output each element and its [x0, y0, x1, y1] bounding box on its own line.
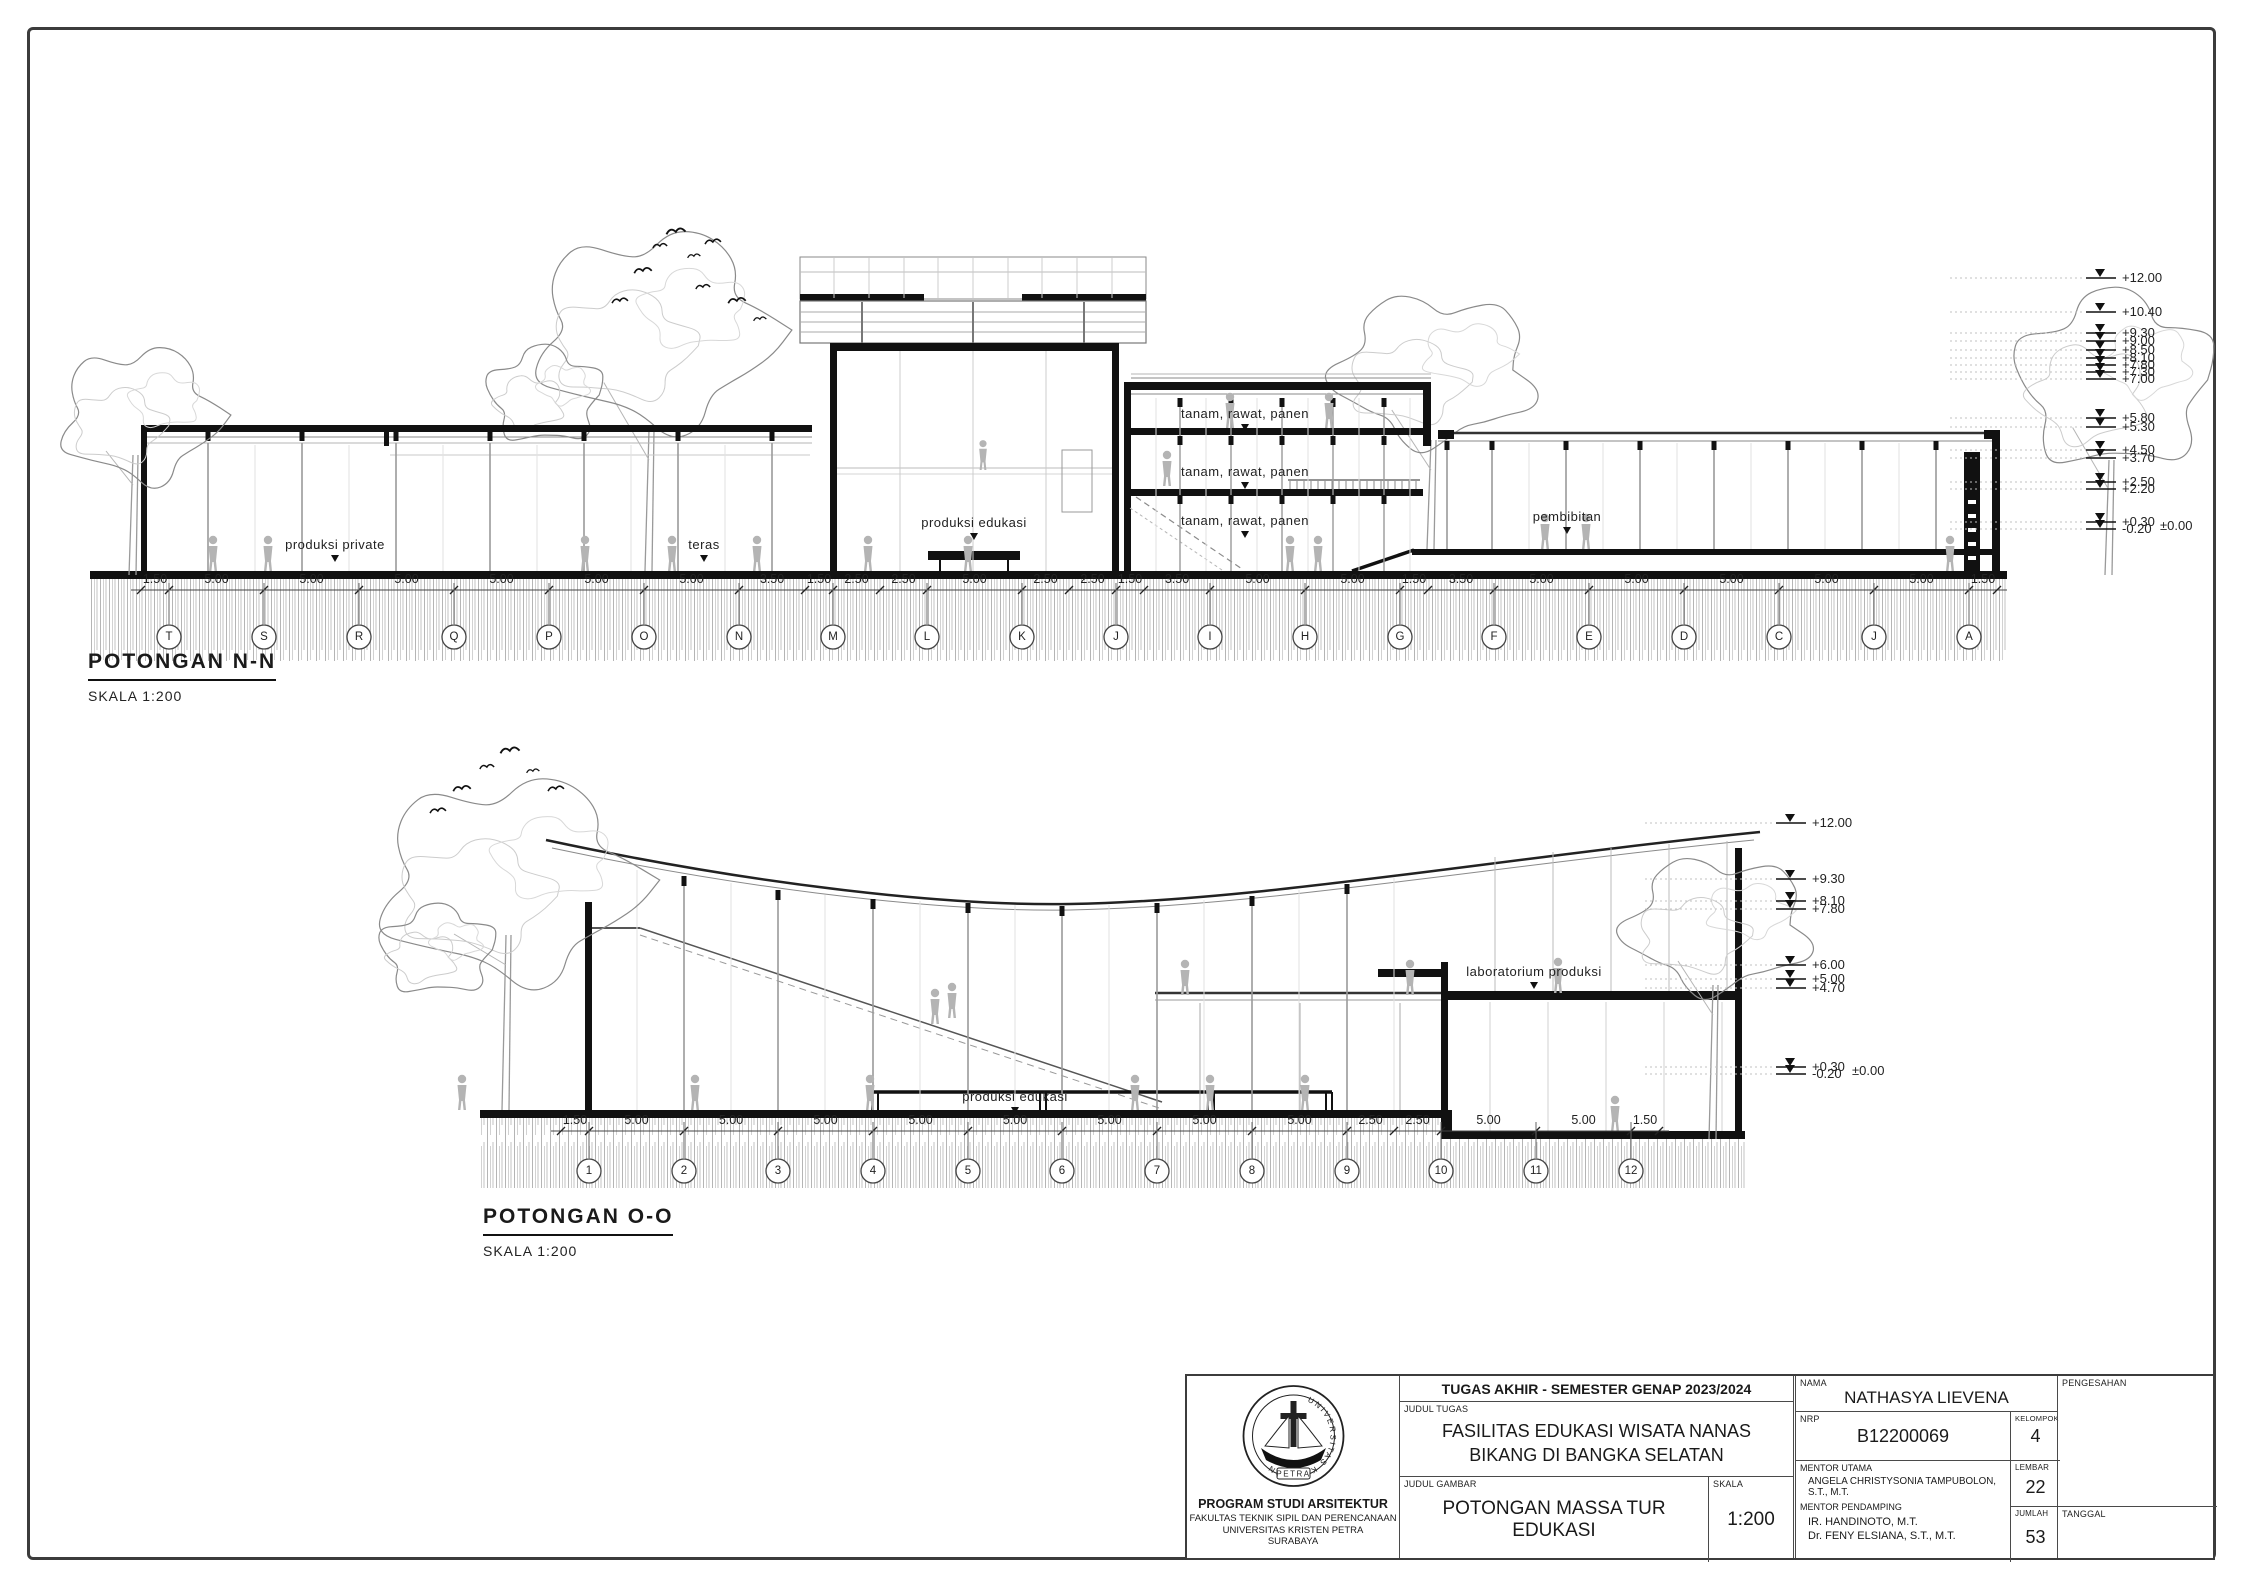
elevation-marker-icon	[1785, 970, 1795, 978]
tree-canopy-inner	[535, 366, 590, 407]
section-nn-scale: SKALA 1:200	[88, 688, 276, 704]
dimension-label: 2.50	[844, 572, 868, 586]
elevation-marker-icon	[2095, 349, 2105, 357]
person-silhouette	[1314, 536, 1323, 571]
person-silhouette	[581, 536, 590, 571]
elevation-label: +12.00	[2122, 270, 2162, 285]
tree-trunk	[1709, 985, 1713, 1139]
elevation-label: -0.20	[1812, 1066, 1842, 1081]
grid-bubble-label: 3	[775, 1165, 781, 1177]
column-cap	[1229, 495, 1234, 504]
tree-trunk	[1716, 985, 1718, 1139]
person-silhouette	[264, 536, 273, 571]
column-cap	[1382, 495, 1387, 504]
person-silhouette	[1406, 960, 1415, 995]
tree-trunk	[509, 935, 511, 1110]
dimension-label: 5.00	[1245, 572, 1269, 586]
column-cap	[1178, 495, 1183, 504]
person-silhouette	[1301, 1075, 1310, 1110]
grid-bubble-label: 12	[1625, 1165, 1638, 1177]
judul-tugas-label: JUDUL TUGAS	[1404, 1404, 1468, 1414]
tree-trunk	[645, 430, 649, 571]
elevation-marker-icon	[2095, 332, 2105, 340]
title-block: UNIVERSITAS KRISTEN PETRA PROGRAM STUDI …	[1185, 1374, 2215, 1560]
person-silhouette	[964, 536, 973, 571]
dimension-label: 5.00	[1571, 1113, 1595, 1127]
dimension-label: 5.00	[1340, 572, 1364, 586]
lembar-label: LEMBAR	[2015, 1463, 2049, 1472]
dimension-label: 3.50	[1165, 572, 1189, 586]
column-cap	[682, 876, 687, 886]
grid-bubble-label: O	[640, 631, 649, 643]
grid-bubble-label: 8	[1249, 1165, 1255, 1177]
section-oo-title: POTONGAN O-O	[483, 1205, 673, 1236]
tree-trunk	[136, 455, 138, 575]
tree-branch	[604, 383, 649, 461]
tree-canopy	[2014, 287, 2214, 463]
column-cap	[1250, 896, 1255, 906]
grid-bubble-label: F	[1490, 631, 1497, 643]
dimension-label: 5.00	[962, 572, 986, 586]
dimension-label: 2.50	[1080, 572, 1104, 586]
room-label: tanam, rawat, panen	[1181, 406, 1309, 421]
institution-university: UNIVERSITAS KRISTEN PETRA	[1187, 1525, 1399, 1537]
tree-canopy-inner	[127, 373, 199, 428]
mentor-pendamping-1: IR. HANDINOTO, M.T.	[1808, 1516, 2006, 1528]
elevation-marker-icon	[2095, 449, 2105, 457]
room-label-arrow-icon	[1241, 482, 1249, 489]
dimension-label: 5.00	[1097, 1113, 1121, 1127]
elevation-label: +12.00	[1812, 815, 1852, 830]
grid-bubble-label: J	[1871, 631, 1877, 643]
grid-bubble-label: E	[1585, 631, 1593, 643]
person-silhouette	[948, 983, 957, 1018]
dimension-label: 5.00	[584, 572, 608, 586]
institution-text: PROGRAM STUDI ARSITEKTUR FAKULTAS TEKNIK…	[1187, 1497, 1399, 1548]
judul-gambar-label: JUDUL GAMBAR	[1404, 1479, 1477, 1489]
institution-faculty: FAKULTAS TEKNIK SIPIL DAN PERENCANAAN	[1187, 1513, 1399, 1525]
bird-icon	[753, 317, 766, 321]
room-label-arrow-icon	[1241, 531, 1249, 538]
person-silhouette	[1286, 536, 1295, 571]
tree-canopy	[379, 903, 496, 992]
room-label: tanam, rawat, panen	[1181, 464, 1309, 479]
elevation-marker-icon	[2095, 513, 2105, 521]
person-silhouette	[209, 536, 218, 571]
bird-icon	[634, 267, 652, 273]
column-cap	[1382, 398, 1387, 407]
dimension-label: 5.00	[1909, 572, 1933, 586]
dimension-label: 2.50	[1405, 1113, 1429, 1127]
dimension-label: 5.00	[1814, 572, 1838, 586]
kelompok-label: KELOMPOK	[2015, 1414, 2059, 1423]
grid-bubble-label: K	[1018, 631, 1026, 643]
dimension-label: 5.00	[1003, 1113, 1027, 1127]
dimension-label: 1.50	[1118, 572, 1142, 586]
elevation-marker-icon	[2095, 370, 2105, 378]
person-silhouette	[1206, 1075, 1215, 1110]
person-silhouette	[1131, 1075, 1140, 1110]
elevation-label: +4.70	[1812, 980, 1845, 995]
column-cap	[1331, 495, 1336, 504]
room-label-arrow-icon	[331, 555, 339, 562]
dimension-label: 2.50	[1358, 1113, 1382, 1127]
elevation-label: +5.30	[2122, 419, 2155, 434]
tree	[379, 903, 496, 992]
grid-bubble-label: A	[1965, 631, 1973, 643]
person-silhouette	[864, 536, 873, 571]
grid-bubble-label: N	[735, 631, 743, 643]
mentor-pendamping-2: Dr. FENY ELSIANA, S.T., M.T.	[1808, 1530, 2006, 1542]
column-cap	[1712, 441, 1717, 450]
column-cap	[1280, 495, 1285, 504]
section-nn-caption: POTONGAN N-N SKALA 1:200	[88, 650, 276, 704]
nrp-value: B12200069	[1796, 1412, 2010, 1460]
dimension-label: 5.00	[813, 1113, 837, 1127]
dimension-label: 1.50	[143, 572, 167, 586]
column-cap	[676, 432, 681, 441]
elevation-marker-icon	[2095, 363, 2105, 371]
tree-canopy-inner	[1706, 883, 1796, 939]
room-label: produksi edukasi	[921, 515, 1027, 530]
person-silhouette	[931, 989, 940, 1024]
tree-canopy-inner	[491, 376, 563, 432]
tree-trunk	[652, 430, 654, 571]
elevation-marker-icon	[2095, 409, 2105, 417]
grid-bubble-label: D	[1680, 631, 1688, 643]
judul-tugas-line1: FASILITAS EDUKASI WISATA NANAS	[1442, 1419, 1751, 1443]
column-cap	[1564, 441, 1569, 450]
logo-banner-text: PETRA	[1276, 1470, 1310, 1479]
grid-bubble-label: 9	[1344, 1165, 1350, 1177]
tree-trunk	[502, 935, 506, 1110]
ladder-rung	[1968, 556, 1976, 560]
dimension-label: 5.00	[1624, 572, 1648, 586]
dimension-label: 5.00	[204, 572, 228, 586]
grid-bubble-label: L	[924, 631, 931, 643]
grid-bubble-label: 5	[965, 1165, 971, 1177]
skala-label: SKALA	[1713, 1479, 1743, 1489]
column-cap	[1331, 436, 1336, 445]
grid-bubble-label: 4	[870, 1165, 877, 1177]
dimension-label: 2.50	[891, 572, 915, 586]
elevation-marker-icon	[1785, 956, 1795, 964]
nama-label: NAMA	[1800, 1378, 1827, 1388]
column-cap	[1060, 906, 1065, 916]
person-silhouette	[753, 536, 762, 571]
tree-trunk	[2105, 460, 2109, 575]
tree-canopy-inner	[428, 923, 483, 961]
room-label: produksi edukasi	[962, 1089, 1068, 1104]
tree-canopy	[536, 232, 792, 437]
elevation-marker-icon	[2095, 520, 2105, 528]
grid-bubble-label: 10	[1435, 1165, 1448, 1177]
room-label: teras	[688, 537, 719, 552]
room-label-arrow-icon	[1563, 527, 1571, 534]
person-silhouette	[1611, 1096, 1620, 1131]
grid-bubble-label: 11	[1530, 1165, 1542, 1177]
person-silhouette	[691, 1075, 700, 1110]
ladder-rung	[1968, 500, 1976, 504]
elevation-marker-icon	[1785, 870, 1795, 878]
column-cap	[1934, 441, 1939, 450]
elevation-marker-icon	[2095, 441, 2105, 449]
dimension-label: 1.50	[1633, 1113, 1657, 1127]
elevation-marker-icon	[2095, 269, 2105, 277]
nrp-label: NRP	[1800, 1414, 1820, 1424]
column-cap	[871, 899, 876, 909]
bird-icon	[695, 284, 710, 289]
dimension-label: 1.50	[1402, 572, 1426, 586]
elevation-marker-icon	[1785, 814, 1795, 822]
elevation-marker-icon	[1785, 1065, 1795, 1073]
grid-bubble-label: R	[355, 631, 363, 643]
person-silhouette	[1181, 960, 1190, 995]
jumlah-label: JUMLAH	[2015, 1509, 2048, 1518]
bird-icon	[430, 808, 446, 813]
section-oo-drawing: 1.505.005.005.005.005.005.005.005.002.50…	[379, 747, 1885, 1188]
dimension-label: 2.50	[1033, 572, 1057, 586]
bird-icon	[687, 254, 700, 258]
column-cap	[1155, 903, 1160, 913]
grid-bubble-label: J	[1113, 631, 1119, 643]
bird-icon	[612, 298, 628, 303]
dimension-label: 5.00	[1529, 572, 1553, 586]
column-cap	[1786, 441, 1791, 450]
elevation-marker-icon	[1785, 892, 1795, 900]
elevation-marker-icon	[2095, 303, 2105, 311]
judul-gambar-value: POTONGAN MASSA TUR EDUKASI	[1400, 1477, 1708, 1562]
person-silhouette	[1946, 536, 1955, 571]
tree-trunk	[1427, 440, 1431, 549]
dimension-label: 5.00	[394, 572, 418, 586]
tree-canopy-inner	[489, 817, 608, 899]
elevation-label: +7.00	[2122, 371, 2155, 386]
elevation-label: ±0.00	[2160, 518, 2192, 533]
grid-bubble-label: G	[1396, 631, 1405, 643]
bird-icon	[500, 747, 520, 754]
grid-bubble-label: S	[260, 631, 268, 643]
dimension-label: 5.00	[299, 572, 323, 586]
elevation-marker-icon	[2095, 341, 2105, 349]
dimension-label: 5.00	[1719, 572, 1743, 586]
pengesahan-label: PENGESAHAN	[2062, 1378, 2127, 1388]
institution-city: SURABAYA	[1187, 1536, 1399, 1548]
dimension-label: 5.00	[679, 572, 703, 586]
elevation-label: +2.20	[2122, 481, 2155, 496]
person-silhouette	[1325, 393, 1334, 428]
elevation-label: +10.40	[2122, 304, 2162, 319]
mentor-pendamping-label: MENTOR PENDAMPING	[1800, 1502, 2006, 1512]
tree-trunk	[1434, 440, 1436, 549]
tree-canopy-inner	[636, 268, 745, 348]
column-cap	[300, 432, 305, 441]
column-cap	[582, 432, 587, 441]
elevation-label: ±0.00	[1852, 1063, 1884, 1078]
grid-bubble-label: Q	[450, 631, 459, 643]
dimension-label: 3.50	[1449, 572, 1473, 586]
dimension-label: 5.00	[1192, 1113, 1216, 1127]
room-label-arrow-icon	[700, 555, 708, 562]
grid-bubble-label: M	[828, 631, 838, 643]
ladder-rung	[1968, 514, 1976, 518]
dimension-label: 1.50	[807, 572, 831, 586]
grid-bubble-label: I	[1208, 631, 1211, 643]
column-cap	[394, 432, 399, 441]
elevation-label: +7.80	[1812, 901, 1845, 916]
tree-canopy-inner	[556, 290, 700, 402]
elevation-marker-icon	[1785, 1058, 1795, 1066]
section-nn-title: POTONGAN N-N	[88, 650, 276, 681]
column-cap	[1345, 884, 1350, 894]
tree	[379, 779, 659, 1110]
elevation-label: +9.30	[1812, 871, 1845, 886]
grid-bubble-label: 7	[1154, 1165, 1160, 1177]
column-cap	[1382, 436, 1387, 445]
tree-trunk	[2112, 460, 2114, 575]
grid-bubble-label: 1	[586, 1165, 592, 1177]
person-silhouette	[668, 536, 677, 571]
nama-value: NATHASYA LIEVENA	[1796, 1376, 2057, 1411]
grid-bubble-label: C	[1775, 631, 1783, 643]
bird-icon	[526, 769, 539, 773]
section-oo-scale: SKALA 1:200	[483, 1243, 673, 1259]
dimension-label: 5.00	[624, 1113, 648, 1127]
person-silhouette	[458, 1075, 467, 1110]
elevation-marker-icon	[2095, 418, 2105, 426]
person-silhouette	[866, 1075, 875, 1110]
person-silhouette	[1163, 451, 1172, 486]
room-label: produksi private	[285, 537, 385, 552]
bird-icon	[479, 764, 494, 769]
column-cap	[1638, 441, 1643, 450]
column-cap	[1178, 436, 1183, 445]
university-logo: UNIVERSITAS KRISTEN PETRA	[1187, 1376, 1400, 1494]
elevation-marker-icon	[2095, 480, 2105, 488]
elevation-label: +6.00	[1812, 957, 1845, 972]
grid-bubble-label: T	[165, 631, 172, 643]
grid-bubble-label: H	[1301, 631, 1309, 643]
dimension-label: 5.00	[1476, 1113, 1500, 1127]
judul-tugas-line2: BIKANG DI BANGKA SELATAN	[1469, 1443, 1723, 1467]
grid-bubble-label: P	[545, 631, 553, 643]
room-label: pembibitan	[1533, 509, 1602, 524]
room-label: tanam, rawat, panen	[1181, 513, 1309, 528]
skala-value: 1:200	[1709, 1477, 1793, 1562]
bird-icon	[453, 785, 471, 791]
mentor-utama-value: ANGELA CHRISTYSONIA TAMPUBOLON, S.T., M.…	[1808, 1476, 2006, 1498]
column-cap	[966, 903, 971, 913]
title-block-institution: UNIVERSITAS KRISTEN PETRA PROGRAM STUDI …	[1187, 1376, 1400, 1558]
section-nn-drawing: 1.505.005.005.005.005.005.003.501.502.50…	[61, 228, 2214, 661]
bird-icon	[548, 786, 564, 791]
dimension-label: 5.00	[489, 572, 513, 586]
person-silhouette	[979, 440, 987, 470]
tree	[1325, 296, 1538, 549]
dimension-label: 5.00	[719, 1113, 743, 1127]
room-label: laboratorium produksi	[1466, 964, 1602, 979]
section-oo-caption: POTONGAN O-O SKALA 1:200	[483, 1205, 673, 1259]
tree-canopy-inner	[402, 839, 559, 954]
column-cap	[1280, 436, 1285, 445]
column-cap	[1860, 441, 1865, 450]
nn-soil-hatch	[90, 579, 2007, 661]
elevation-label: -0.20	[2122, 521, 2152, 536]
elevation-marker-icon	[1785, 979, 1795, 987]
elevation-label: +3.70	[2122, 450, 2155, 465]
dimension-label: 1.50	[1971, 572, 1995, 586]
tree	[536, 232, 792, 571]
dimension-label: 1.50	[563, 1113, 587, 1127]
titleblock-header: TUGAS AKHIR - SEMESTER GENAP 2023/2024	[1400, 1376, 1793, 1401]
column-cap	[1229, 436, 1234, 445]
ladder-rung	[1968, 542, 1976, 546]
tanggal-label: TANGGAL	[2062, 1509, 2106, 1519]
mentor-utama-label: MENTOR UTAMA	[1800, 1463, 2006, 1473]
column-cap	[770, 432, 775, 441]
column-cap	[1445, 441, 1450, 450]
dimension-label: 5.00	[908, 1113, 932, 1127]
elevation-marker-icon	[2095, 324, 2105, 332]
room-label-arrow-icon	[1530, 982, 1538, 989]
column-cap	[1490, 441, 1495, 450]
column-cap	[488, 432, 493, 441]
institution-program: PROGRAM STUDI ARSITEKTUR	[1187, 1497, 1399, 1513]
elevation-marker-icon	[2095, 356, 2105, 364]
dimension-label: 3.50	[760, 572, 784, 586]
dimension-label: 5.00	[1287, 1113, 1311, 1127]
sections-drawing: 1.505.005.005.005.005.005.003.501.502.50…	[0, 0, 2245, 1587]
tree-canopy-inner	[1422, 324, 1519, 387]
grid-bubble-label: 2	[681, 1165, 687, 1177]
column-cap	[776, 890, 781, 900]
grid-bubble-label: 6	[1059, 1165, 1065, 1177]
tree-canopy	[379, 779, 659, 990]
